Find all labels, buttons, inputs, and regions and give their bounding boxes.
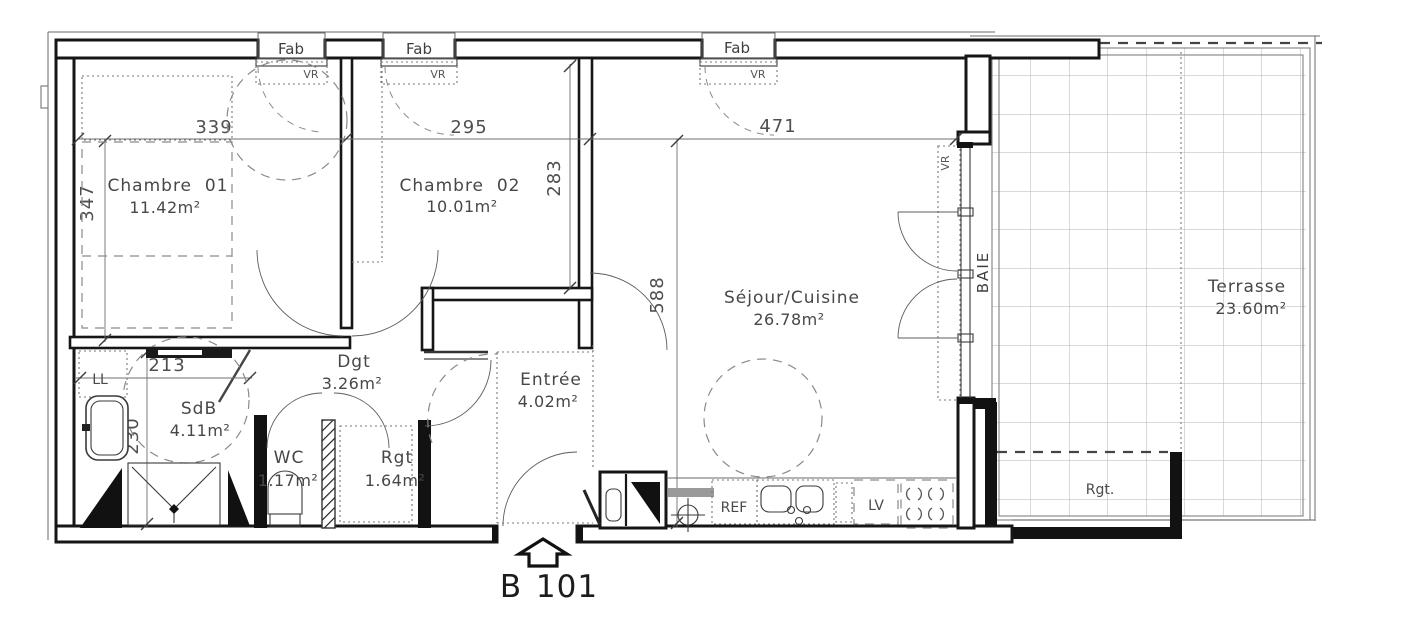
door-wc-arc — [267, 393, 322, 448]
room-label-rgt-name: Rgt — [381, 448, 413, 468]
terrace: Rgt. Terrasse 23.60m² — [970, 36, 1322, 539]
wall-baie-bottom — [958, 398, 974, 528]
storage-wall-bottom — [985, 527, 1182, 539]
drainer-mat — [836, 483, 852, 522]
room-label-rgt-area: 1.64m² — [365, 471, 426, 490]
wall-top-c — [455, 40, 702, 58]
shower — [128, 463, 220, 525]
room-label-entree-name: Entrée — [520, 370, 582, 390]
interior-walls — [70, 58, 666, 528]
room-label-chambre01-name: Chambre 01 — [108, 176, 229, 196]
wall-wc-rgt-hatched — [322, 420, 335, 528]
dim-588: 588 — [647, 276, 668, 313]
wall-sdb-top — [70, 337, 350, 348]
shear-wall-triangle-right — [228, 470, 250, 526]
room-label-sdb-area: 4.11m² — [170, 421, 231, 440]
baie-glazing — [961, 146, 970, 400]
room-label-entree-area: 4.02m² — [518, 392, 579, 411]
entrance-arrow-icon — [519, 539, 567, 566]
dim-295: 295 — [450, 117, 487, 138]
wall-baie-top — [966, 56, 990, 134]
entree-turning-arc — [428, 354, 498, 443]
vanity-sink-slot — [158, 350, 202, 355]
dim-283: 283 — [544, 159, 565, 196]
room-label-chambre02-name: Chambre 02 — [400, 176, 521, 196]
baie-label: BAIE — [974, 251, 992, 293]
door-entree-dgt-arc — [425, 360, 491, 426]
ch01-bed — [82, 142, 232, 328]
window2-shutter-box — [381, 62, 457, 84]
room-label-terrasse-name: Terrasse — [1207, 277, 1286, 297]
floor-plan-page: Rgt. Terrasse 23.60m² Fab VR F — [0, 0, 1403, 639]
room-label-sdb-name: SdB — [181, 399, 217, 419]
room-label-wc-area: 1.17m² — [258, 471, 319, 490]
storage-wall-left — [985, 402, 997, 529]
window1-shutter-label: VR — [303, 68, 319, 81]
fridge-label: REF — [721, 500, 748, 516]
baie-cap-top — [957, 142, 973, 148]
bathtub-faucet — [82, 424, 90, 431]
window2-shutter-label: VR — [430, 68, 446, 81]
room-labels: Chambre 01 11.42m² Chambre 02 10.01m² Sé… — [108, 176, 860, 490]
hob-burners — [907, 488, 944, 520]
wall-ch02-sejour — [579, 58, 592, 348]
room-label-wc-name: WC — [274, 448, 305, 468]
window1-label: Fab — [278, 40, 304, 58]
unit-label-group: B 101 — [500, 539, 598, 605]
wall-ch02-bottom — [422, 288, 592, 300]
unit-number: 101 — [536, 569, 598, 605]
door-ch01-arc — [257, 250, 343, 336]
room-label-dgt-area: 3.26m² — [322, 374, 383, 393]
dim-213: 213 — [148, 355, 185, 376]
floor-plan: Rgt. Terrasse 23.60m² Fab VR F — [0, 0, 1403, 639]
wall-top-d — [775, 40, 1099, 58]
shear-wall-triangle-left — [80, 468, 122, 528]
ch01-turning-circle — [227, 60, 347, 180]
window3-shutter-label: VR — [750, 68, 766, 81]
kitchen-counter-return — [668, 488, 714, 497]
dishwasher-label: LV — [868, 498, 884, 514]
room-label-dgt-name: Dgt — [337, 352, 371, 372]
entrance-door-leaf — [584, 490, 600, 525]
baie-door-arc-bottom — [898, 279, 957, 338]
wall-top-a — [56, 40, 258, 58]
washing-machine-label: LL — [92, 372, 108, 388]
bay-window: BAIE VR — [898, 142, 992, 404]
jamb-entrance-right — [577, 526, 583, 542]
outer-notch — [41, 86, 48, 108]
room-label-sejour-name: Séjour/Cuisine — [724, 288, 860, 308]
terrace-storage-label: Rgt. — [1086, 482, 1115, 498]
room-label-chambre02-area: 10.01m² — [426, 197, 497, 216]
sejour-turning-circle — [704, 359, 822, 477]
wall-top-b — [325, 40, 383, 58]
wall-baie-bottom-stub — [974, 398, 996, 409]
unit-building: B — [500, 569, 522, 605]
baie-shutter-label: VR — [939, 155, 952, 171]
baie-cap-bottom — [957, 398, 973, 404]
room-label-terrasse-area: 23.60m² — [1215, 299, 1286, 318]
wall-bottom-left — [56, 526, 497, 542]
kitchen: REF LV — [668, 478, 956, 532]
jamb-entrance-left — [492, 526, 498, 542]
window3-label: Fab — [724, 39, 750, 57]
wall-left — [56, 40, 74, 542]
hob-outline — [901, 480, 953, 528]
door-rgt-arc — [334, 393, 389, 448]
dim-347: 347 — [77, 184, 98, 221]
room-label-chambre01-area: 11.42m² — [129, 198, 200, 217]
window2-label: Fab — [406, 40, 432, 58]
baie-door-arc-top — [898, 212, 957, 271]
room-label-sejour-area: 26.78m² — [753, 310, 824, 329]
sink-bowl-left — [761, 486, 791, 512]
storage-wall-right — [1170, 452, 1182, 539]
entrance-door-arc — [503, 452, 577, 526]
dim-471: 471 — [759, 116, 796, 137]
baie-shutter-box — [938, 146, 960, 400]
